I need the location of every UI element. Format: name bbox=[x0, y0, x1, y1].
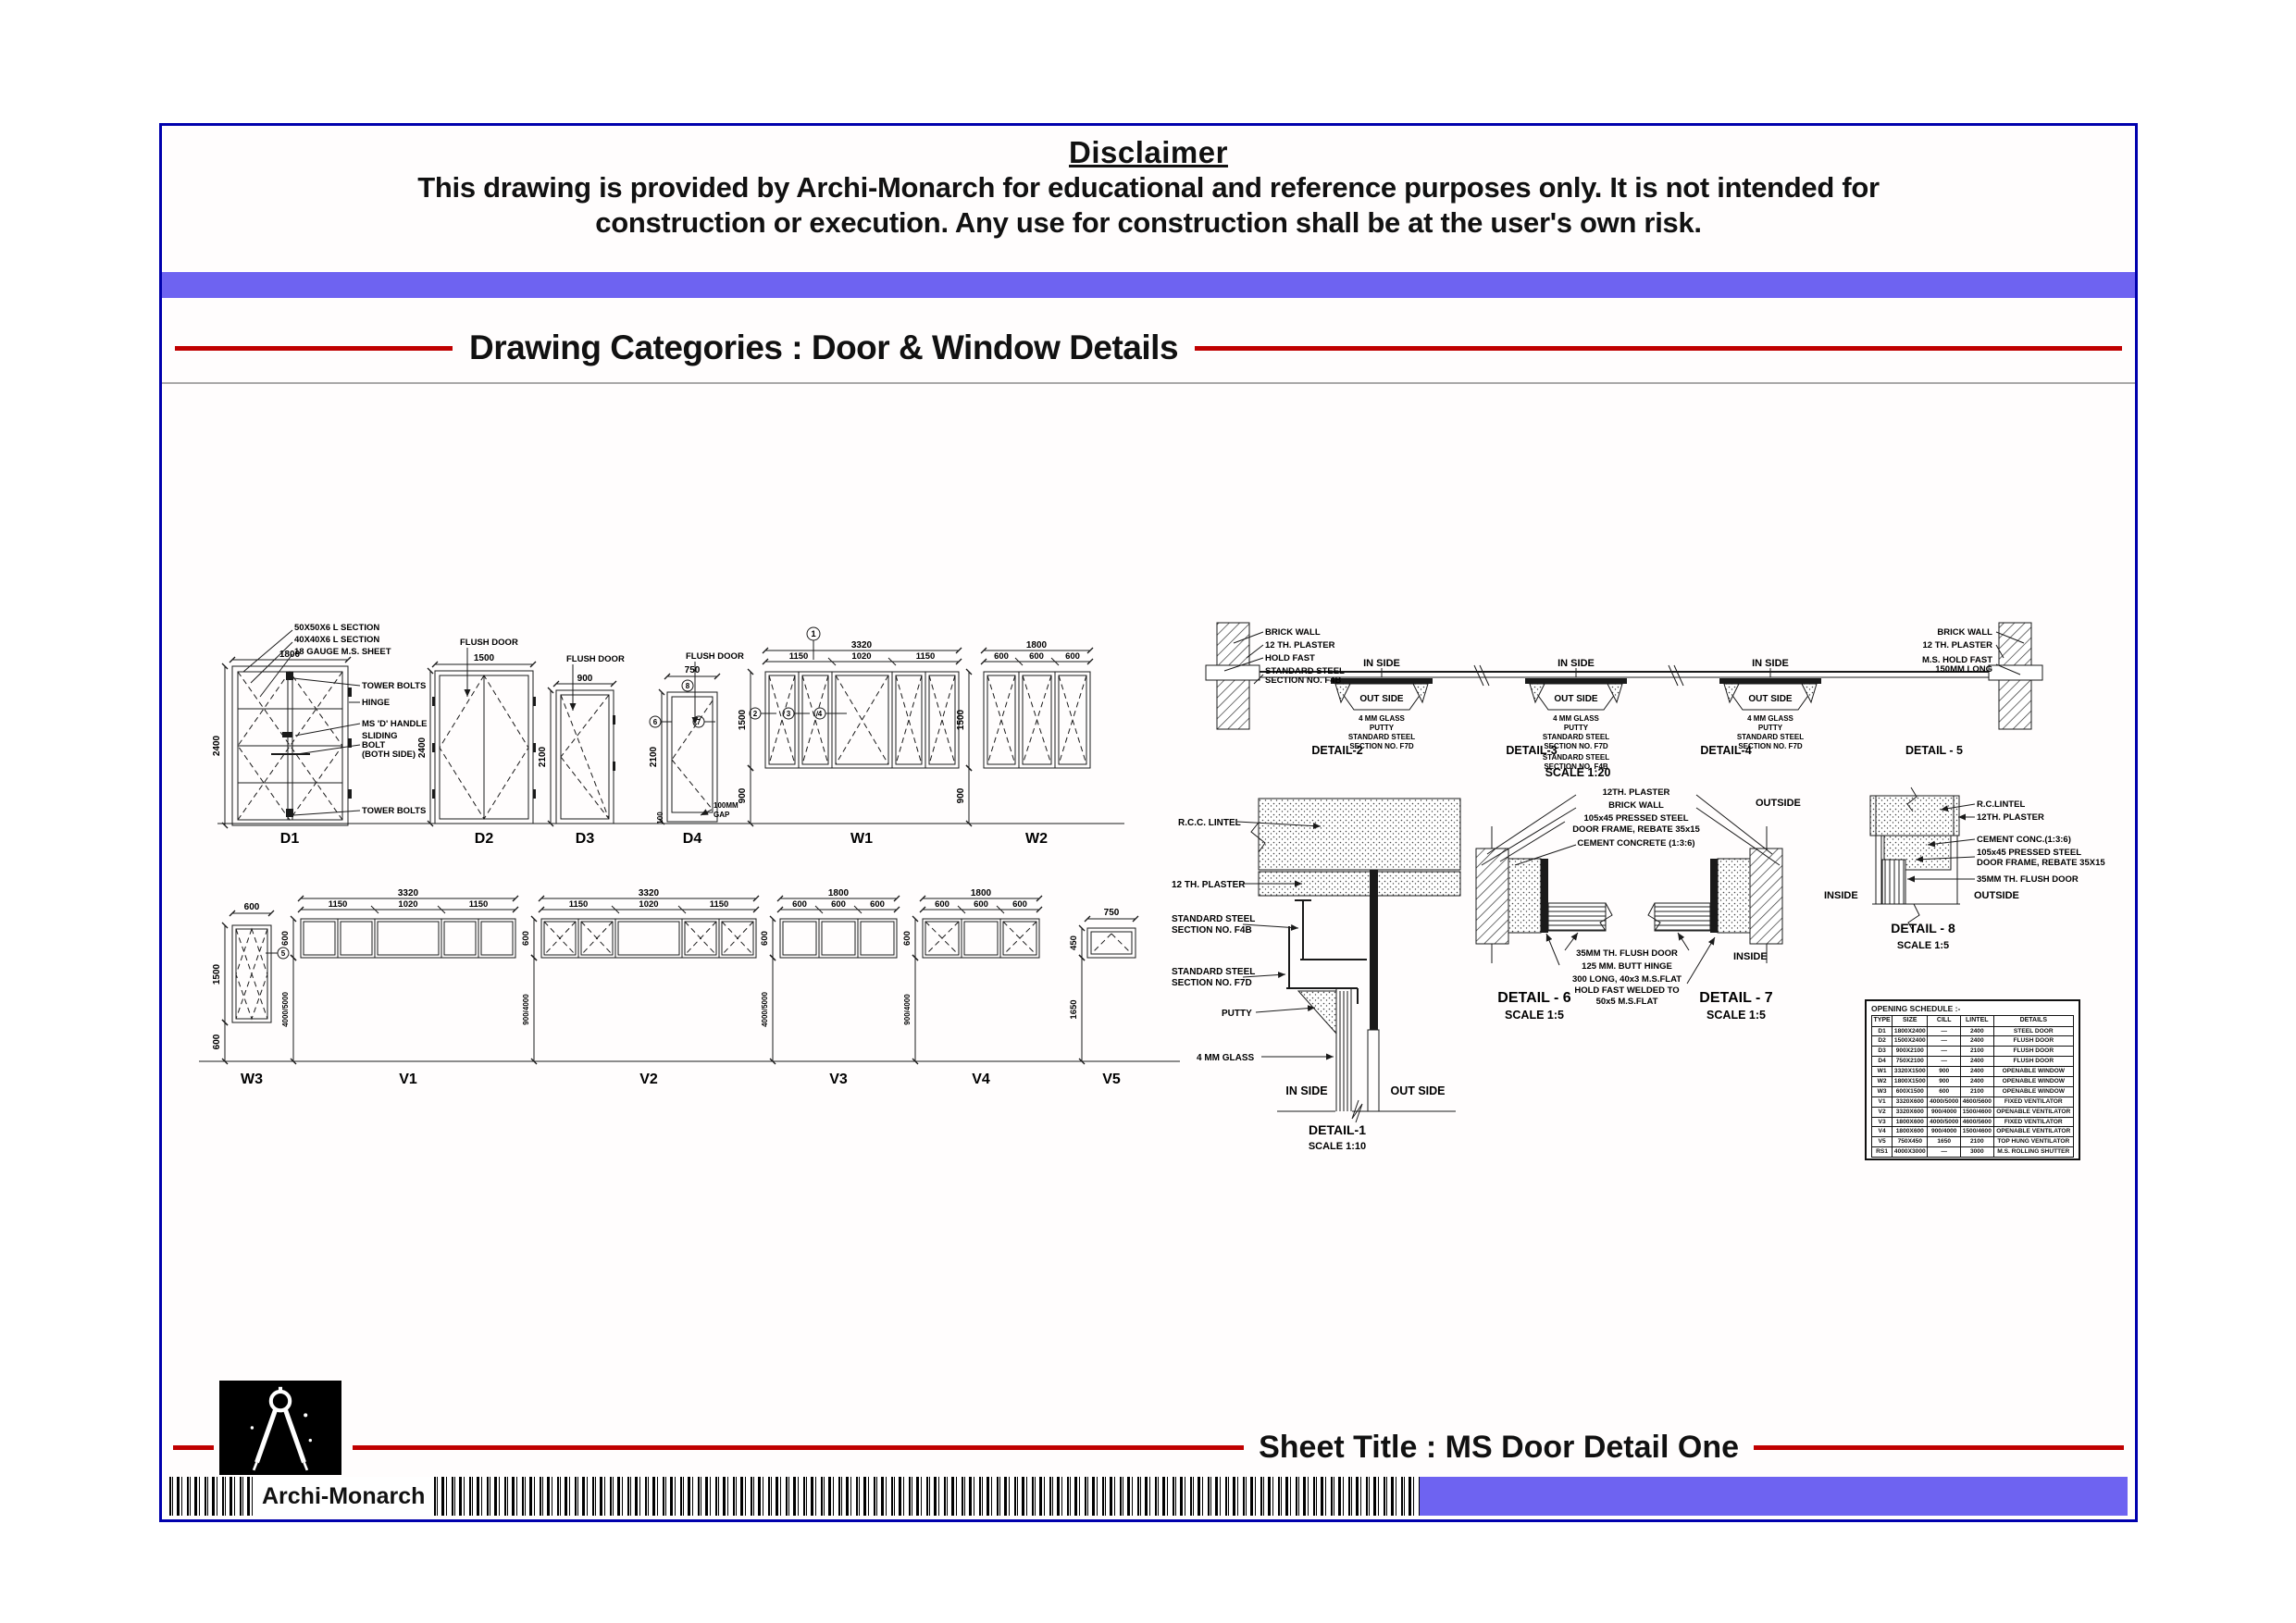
cad-drawing-area: 50X50X6 L SECTION 40X40X6 L SECTION 18 G… bbox=[162, 391, 2137, 1384]
det1-note-lintel: R.C.C. LINTEL bbox=[1178, 818, 1241, 828]
plan-section-details: BRICK WALL 12 TH. PLASTER HOLD FAST STAN… bbox=[1206, 623, 2042, 779]
elevation-d1: 50X50X6 L SECTION 40X40X6 L SECTION 18 G… bbox=[212, 623, 428, 847]
det67-note-cement: CEMENT CONCRETE (1:3:6) bbox=[1577, 838, 1694, 849]
det67-note-flushdoor: 35MM TH. FLUSH DOOR bbox=[1576, 948, 1678, 959]
elevation-w1: 1 2 3 4 3320 1150 1020 1150 1500 900 W1 bbox=[738, 627, 959, 847]
drawing-sheet: Disclaimer This drawing is provided by A… bbox=[159, 123, 2138, 1522]
v3-vent-frame bbox=[780, 919, 897, 958]
v3-dim-seg: 600 bbox=[792, 899, 807, 910]
plan-u3-putty: PUTTY bbox=[1758, 724, 1783, 732]
v1-dim-seg3: 1150 bbox=[469, 899, 489, 910]
w2-dim-height: 1500 bbox=[956, 709, 966, 730]
plan-outside-3: OUT SIDE bbox=[1748, 694, 1793, 704]
det67-note-frame-1: 105x45 PRESSED STEEL bbox=[1584, 813, 1689, 824]
det8-inside-label: INSIDE bbox=[1824, 890, 1858, 901]
schedule-row: V31800X6004000/50004600/5600FIXED VENTIL… bbox=[1872, 1117, 2074, 1127]
plan-inside-2: IN SIDE bbox=[1558, 658, 1595, 669]
d3-caption: D3 bbox=[576, 831, 595, 847]
det7-door-leaf bbox=[1655, 903, 1710, 931]
plan-u2-steel1: STANDARD STEEL bbox=[1543, 733, 1609, 741]
w1-dim-seg2: 1020 bbox=[851, 651, 871, 662]
v4-vent-frame bbox=[923, 919, 1039, 958]
det1-note-f7d-2: SECTION NO. F7D bbox=[1172, 978, 1252, 988]
schedule-header: DETAILS bbox=[1993, 1016, 2073, 1027]
d4-door-frame bbox=[667, 692, 717, 822]
det8-caption: DETAIL - 8 bbox=[1891, 921, 1955, 935]
elevation-w2: 1800 600 600 600 1500 900 W2 bbox=[956, 640, 1090, 847]
d4-mark-8: 8 bbox=[686, 682, 690, 690]
v1-vent-frame bbox=[301, 919, 515, 958]
plan-note-holdfast-l: HOLD FAST bbox=[1265, 653, 1315, 663]
v2-dim-seg3: 1150 bbox=[710, 899, 729, 910]
det7-brick bbox=[1750, 849, 1782, 944]
det7-scale: SCALE 1:5 bbox=[1706, 1009, 1766, 1022]
v4-caption: V4 bbox=[972, 1072, 990, 1087]
d4-note-gap1: 100MM bbox=[714, 801, 738, 810]
d3-dim-height: 2100 bbox=[538, 746, 548, 767]
disclaimer-block: Disclaimer This drawing is provided by A… bbox=[162, 135, 2135, 241]
plan-u2-putty: PUTTY bbox=[1564, 724, 1589, 732]
det1-inside-label: IN SIDE bbox=[1285, 1084, 1327, 1097]
schedule-row: D11800X2400—2400STEEL DOOR bbox=[1872, 1026, 2074, 1036]
barcode-main bbox=[434, 1477, 1420, 1516]
screenshot-canvas: Disclaimer This drawing is provided by A… bbox=[0, 0, 2296, 1623]
detail-1: R.C.C. LINTEL 12 TH. PLASTER STANDARD ST… bbox=[1172, 799, 1460, 1152]
v3-dim-width: 1800 bbox=[828, 888, 850, 898]
d4-dim-height: 2100 bbox=[649, 746, 659, 767]
disclaimer-title: Disclaimer bbox=[162, 135, 2135, 170]
plan-holdfast-left bbox=[1206, 665, 1260, 680]
footer-title-row: Sheet Title : MS Door Detail One bbox=[173, 1429, 2124, 1466]
footer-blue-bar bbox=[1420, 1477, 2128, 1516]
plan-u1-glass: 4 MM GLASS bbox=[1359, 714, 1405, 723]
v1-dim-sill: 4000/5000 bbox=[281, 992, 290, 1027]
det8-note-frame-2: DOOR FRAME, REBATE 35X15 bbox=[1977, 858, 2105, 868]
schedule-row: V41800X600900/40001500/4600OPENABLE VENT… bbox=[1872, 1127, 2074, 1137]
d1-dim-width: 1800 bbox=[279, 650, 301, 660]
v1-dim-seg1: 1150 bbox=[329, 899, 348, 910]
d4-dim-width: 750 bbox=[685, 665, 701, 675]
svg-text:600: 600 bbox=[870, 899, 885, 910]
v5-caption: V5 bbox=[1102, 1072, 1121, 1087]
w1-dim-sill: 900 bbox=[738, 787, 748, 803]
v2-vent-frame bbox=[541, 919, 756, 958]
elevation-v5: 750 450 1650 V5 bbox=[1069, 908, 1136, 1087]
v4-dim-sill: 900/4000 bbox=[903, 994, 912, 1025]
divider-line bbox=[162, 382, 2135, 384]
w3-dim-height: 1500 bbox=[212, 963, 222, 985]
svg-text:600: 600 bbox=[1012, 899, 1027, 910]
plan-u2-glass: 4 MM GLASS bbox=[1553, 714, 1599, 723]
v4-dim-seg: 600 bbox=[935, 899, 949, 910]
det1-note-putty: PUTTY bbox=[1222, 1009, 1252, 1019]
plan-note-plaster-r: 12 TH. PLASTER bbox=[1923, 640, 1993, 650]
det8-door-leaf bbox=[1882, 860, 1905, 904]
det6-scale: SCALE 1:5 bbox=[1505, 1009, 1564, 1022]
det67-inside-label: INSIDE bbox=[1733, 951, 1768, 962]
elevation-d3: FLUSH DOOR 900 2100 D3 bbox=[538, 654, 625, 847]
w1-mark-3: 3 bbox=[787, 710, 791, 718]
det1-note-plaster: 12 TH. PLASTER bbox=[1172, 880, 1246, 890]
plan-note-brickwall-r: BRICK WALL bbox=[1937, 627, 1992, 638]
det67-note-brick: BRICK WALL bbox=[1608, 800, 1664, 811]
det8-outside-label: OUTSIDE bbox=[1974, 890, 2019, 901]
category-heading-row: Drawing Categories : Door & Window Detai… bbox=[175, 324, 2122, 372]
accent-bar bbox=[162, 272, 2135, 298]
v2-caption: V2 bbox=[639, 1072, 658, 1087]
v2-dim-sill: 900/4000 bbox=[522, 994, 530, 1025]
schedule-row: D4750X2100—2400FLUSH DOOR bbox=[1872, 1057, 2074, 1067]
red-rule-right bbox=[1195, 346, 2122, 351]
v1-dim-width: 3320 bbox=[398, 888, 419, 898]
d2-dim-width: 1500 bbox=[474, 653, 495, 663]
schedule-header: CILL bbox=[1928, 1016, 1961, 1027]
plan-note-brickwall-l: BRICK WALL bbox=[1265, 627, 1321, 638]
plan-note-holdfast-r2: 150MM LONG bbox=[1935, 664, 1992, 675]
d1-dim-height: 2400 bbox=[212, 735, 222, 756]
schedule-row: RS14000X3000—3000M.S. ROLLING SHUTTER bbox=[1872, 1147, 2074, 1158]
d1-note-mssheet: 18 GAUGE M.S. SHEET bbox=[294, 647, 391, 657]
det1-note-f4b-1: STANDARD STEEL bbox=[1172, 914, 1255, 924]
d1-note-towerbolts-bottom: TOWER BOLTS bbox=[362, 806, 426, 816]
det67-note-frame-2: DOOR FRAME, REBATE 35x15 bbox=[1572, 824, 1700, 835]
plan-scale: SCALE 1:20 bbox=[1545, 766, 1611, 779]
plan-note-plaster-l: 12 TH. PLASTER bbox=[1265, 640, 1335, 650]
elevation-w3: 5 600 1500 600 W3 bbox=[212, 902, 289, 1087]
elevation-d4: 8 6 7 FLUSH DOOR 750 2100 100MM GAP 100 … bbox=[649, 651, 744, 847]
det1-frame-channel bbox=[1368, 1030, 1379, 1111]
plan-u3-glass: 4 MM GLASS bbox=[1747, 714, 1793, 723]
det8-note-lintel: R.C.LINTEL bbox=[1977, 799, 2025, 810]
d1-note-handle: MS 'D' HANDLE bbox=[362, 719, 428, 729]
schedule-header: LINTEL bbox=[1961, 1016, 1994, 1027]
d2-note-flushdoor: FLUSH DOOR bbox=[460, 638, 518, 648]
det67-note-holdfast-1: 300 LONG, 40x3 M.S.FLAT bbox=[1572, 974, 1682, 985]
det6-concrete bbox=[1508, 859, 1541, 933]
schedule-row: D3900X2100—2100FLUSH DOOR bbox=[1872, 1047, 2074, 1057]
plan-outside-2: OUT SIDE bbox=[1554, 694, 1598, 704]
schedule-row: V13320X6004000/50004600/5600FIXED VENTIL… bbox=[1872, 1096, 2074, 1107]
det7-caption: DETAIL - 7 bbox=[1699, 990, 1773, 1006]
det6-brick bbox=[1476, 849, 1508, 944]
schedule-row: W21800X15009002400OPENABLE WINDOW bbox=[1872, 1076, 2074, 1086]
footer-red-dash bbox=[173, 1445, 214, 1450]
red-rule-left bbox=[175, 346, 453, 351]
disclaimer-line-1: This drawing is provided by Archi-Monarc… bbox=[162, 170, 2135, 205]
elevation-v4: 1800 600 600 600 600 900/4000 V4 bbox=[902, 888, 1039, 1087]
w2-dim-width: 1800 bbox=[1026, 640, 1048, 650]
d1-note-lsection40: 40X40X6 L SECTION bbox=[294, 635, 379, 645]
v2-dim-width: 3320 bbox=[639, 888, 660, 898]
w1-dim-seg3: 1150 bbox=[916, 651, 936, 662]
det8-lintel bbox=[1876, 796, 1954, 836]
d1-note-hinge: HINGE bbox=[362, 698, 390, 708]
det8-scale: SCALE 1:5 bbox=[1897, 940, 1949, 951]
page-title: Drawing Categories : Door & Window Detai… bbox=[469, 328, 1178, 367]
v1-caption: V1 bbox=[399, 1072, 417, 1087]
d2-caption: D2 bbox=[475, 831, 494, 847]
w1-mark-1: 1 bbox=[811, 629, 816, 639]
plan-inside-1: IN SIDE bbox=[1363, 658, 1400, 669]
det1-note-f7d-1: STANDARD STEEL bbox=[1172, 967, 1255, 977]
d1-caption: D1 bbox=[280, 831, 300, 847]
v1-dim-height: 600 bbox=[280, 931, 291, 946]
d4-mark-6: 6 bbox=[653, 718, 658, 726]
det8-note-flushdoor: 35MM TH. FLUSH DOOR bbox=[1977, 874, 2079, 885]
w2-dim-seg: 600 bbox=[994, 651, 1009, 662]
svg-text:600: 600 bbox=[1029, 651, 1044, 662]
barcode-row: Archi-Monarch bbox=[169, 1477, 2128, 1516]
w1-dim-height: 1500 bbox=[738, 709, 748, 730]
detail5-caption: DETAIL - 5 bbox=[1905, 744, 1963, 757]
schedule-row: D21500X2400—2400FLUSH DOOR bbox=[1872, 1036, 2074, 1047]
elevation-v2: 3320 1150 1020 1150 600 900/4000 V2 bbox=[521, 888, 756, 1087]
det67-note-holdfast-2: HOLD FAST WELDED TO bbox=[1574, 985, 1679, 996]
w2-caption: W2 bbox=[1025, 831, 1048, 847]
detail4-caption: DETAIL-4 bbox=[1700, 744, 1751, 757]
v1-dim-seg2: 1020 bbox=[398, 899, 417, 910]
archi-monarch-logo bbox=[219, 1381, 341, 1475]
d4-mark-7: 7 bbox=[697, 718, 701, 726]
w3-dim-width: 600 bbox=[244, 902, 260, 912]
v3-dim-sill: 4000/5000 bbox=[761, 992, 769, 1027]
det8-note-cement: CEMENT CONC.(1:3:6) bbox=[1977, 835, 2071, 845]
schedule-row: V5750X45016502100TOP HUNG VENTILATOR bbox=[1872, 1137, 2074, 1147]
disclaimer-line-2: construction or execution. Any use for c… bbox=[162, 205, 2135, 241]
det6-caption: DETAIL - 6 bbox=[1497, 990, 1571, 1006]
d4-note-gap2: GAP bbox=[714, 811, 730, 819]
elevation-v1: 3320 1150 1020 1150 600 4000/5000 V1 bbox=[280, 888, 515, 1087]
w1-caption: W1 bbox=[850, 831, 873, 847]
v2-dim-seg2: 1020 bbox=[639, 899, 658, 910]
elevation-v3: 1800 600 600 600 600 4000/5000 V3 bbox=[760, 888, 897, 1087]
v4-dim-width: 1800 bbox=[971, 888, 992, 898]
det7-concrete bbox=[1718, 859, 1750, 933]
det67-note-hinge: 125 MM. BUTT HINGE bbox=[1582, 961, 1672, 972]
v5-dim-sill: 1650 bbox=[1069, 999, 1079, 1019]
barcode-left bbox=[169, 1477, 253, 1516]
v3-caption: V3 bbox=[829, 1072, 848, 1087]
det67-note-holdfast-3: 50x5 M.S.FLAT bbox=[1596, 997, 1658, 1007]
detail3-caption: DETAIL-3 bbox=[1506, 744, 1557, 757]
d1-note-bothside: (BOTH SIDE) bbox=[362, 750, 416, 760]
w3-dim-sill: 600 bbox=[212, 1034, 222, 1049]
det67-outside-label: OUTSIDE bbox=[1756, 798, 1801, 809]
schedule-header: TYPE bbox=[1872, 1016, 1893, 1027]
elevation-d2: FLUSH DOOR 1500 2400 D2 bbox=[417, 638, 536, 847]
plan-u1-putty: PUTTY bbox=[1370, 724, 1395, 732]
plan-note-steel-l2: SECTION NO. F4B bbox=[1265, 675, 1341, 686]
schedule-row: V23320X600900/40001500/4600OPENABLE VENT… bbox=[1872, 1107, 2074, 1117]
detail-6-7: 12TH. PLASTER BRICK WALL 105x45 PRESSED … bbox=[1476, 787, 1801, 1022]
schedule-row: W13320X15009002400OPENABLE WINDOW bbox=[1872, 1067, 2074, 1077]
d1-note-towerbolts-top: TOWER BOLTS bbox=[362, 681, 426, 691]
sheet-title: Sheet Title : MS Door Detail One bbox=[1259, 1430, 1739, 1466]
w1-mark-2: 2 bbox=[753, 710, 758, 718]
footer-red-rule-right bbox=[1754, 1445, 2124, 1450]
w3-mark-5: 5 bbox=[281, 949, 286, 958]
footer-red-rule-left bbox=[353, 1445, 1244, 1450]
schedule-title: OPENING SCHEDULE :- bbox=[1871, 1004, 2074, 1013]
det1-note-f4b-2: SECTION NO. F4B bbox=[1172, 925, 1252, 935]
d2-dim-height: 2400 bbox=[417, 737, 428, 758]
w1-mark-4: 4 bbox=[818, 710, 823, 718]
det1-scale: SCALE 1:10 bbox=[1309, 1141, 1366, 1152]
v2-dim-height: 600 bbox=[521, 931, 531, 946]
d1-note-lsection50: 50X50X6 L SECTION bbox=[294, 623, 379, 633]
schedule-table: TYPESIZECILLLINTELDETAILSD11800X2400—240… bbox=[1871, 1015, 2074, 1158]
det1-outside-label: OUT SIDE bbox=[1390, 1084, 1445, 1097]
schedule-row: W3600X15006002100OPENABLE WINDOW bbox=[1872, 1086, 2074, 1096]
d3-note-flushdoor: FLUSH DOOR bbox=[566, 654, 625, 664]
svg-text:600: 600 bbox=[1065, 651, 1080, 662]
detail2-caption: DETAIL-2 bbox=[1311, 744, 1362, 757]
d4-dim-gap: 100 bbox=[656, 811, 664, 824]
det1-putty bbox=[1298, 991, 1336, 1034]
plan-u1-steel1: STANDARD STEEL bbox=[1348, 733, 1415, 741]
opening-schedule: OPENING SCHEDULE :- TYPESIZECILLLINTELDE… bbox=[1865, 999, 2080, 1160]
v5-dim-height: 450 bbox=[1069, 935, 1079, 950]
plan-u3-steel1: STANDARD STEEL bbox=[1737, 733, 1804, 741]
d3-dim-width: 900 bbox=[577, 674, 593, 684]
v5-vent-frame bbox=[1087, 928, 1136, 958]
plan-outside-1: OUT SIDE bbox=[1359, 694, 1404, 704]
d4-caption: D4 bbox=[683, 831, 702, 847]
w2-dim-sill: 900 bbox=[956, 787, 966, 803]
compass-icon bbox=[219, 1381, 341, 1475]
det67-note-plaster: 12TH. PLASTER bbox=[1603, 787, 1670, 798]
v2-dim-seg1: 1150 bbox=[569, 899, 589, 910]
plan-inside-3: IN SIDE bbox=[1752, 658, 1789, 669]
v4-dim-height: 600 bbox=[902, 931, 912, 946]
w1-dim-seg1: 1150 bbox=[789, 651, 809, 662]
svg-text:600: 600 bbox=[974, 899, 988, 910]
det1-note-glass: 4 MM GLASS bbox=[1197, 1053, 1255, 1063]
det8-note-plaster: 12TH. PLASTER bbox=[1977, 812, 2044, 823]
w1-dim-width: 3320 bbox=[851, 640, 873, 650]
det1-caption: DETAIL-1 bbox=[1309, 1122, 1366, 1137]
d4-note-flushdoor: FLUSH DOOR bbox=[686, 651, 744, 662]
det8-note-frame-1: 105x45 PRESSED STEEL bbox=[1977, 848, 2081, 858]
v3-dim-height: 600 bbox=[760, 931, 770, 946]
w3-caption: W3 bbox=[241, 1072, 263, 1087]
svg-text:600: 600 bbox=[831, 899, 846, 910]
det1-lintel-block bbox=[1259, 799, 1460, 870]
detail-8: R.C.LINTEL 12TH. PLASTER CEMENT CONC.(1:… bbox=[1824, 787, 2105, 951]
brand-name: Archi-Monarch bbox=[253, 1477, 434, 1516]
schedule-header: SIZE bbox=[1893, 1016, 1928, 1027]
det6-door-leaf bbox=[1548, 903, 1606, 931]
v5-dim-width: 750 bbox=[1104, 908, 1120, 918]
